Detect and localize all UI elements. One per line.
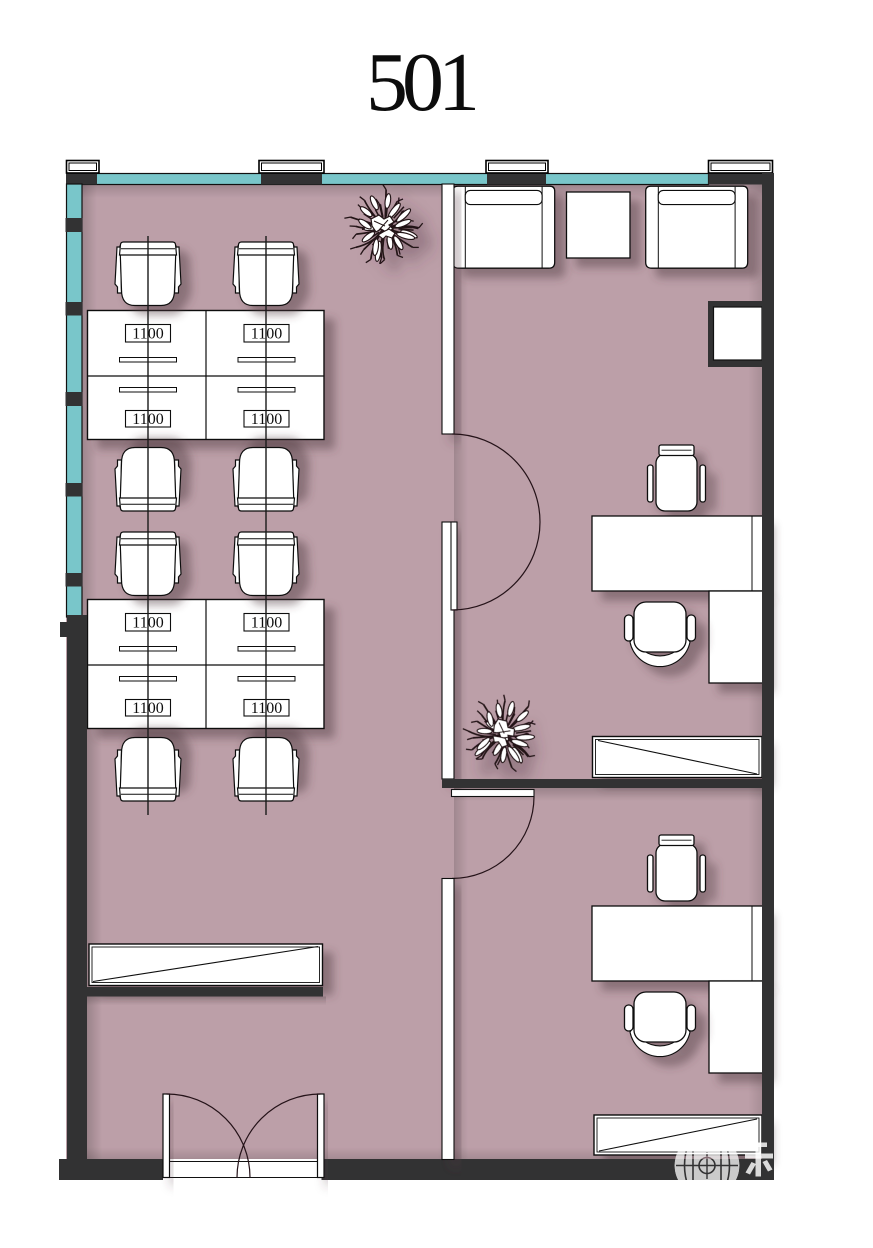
svg-text:501: 501	[366, 36, 475, 129]
